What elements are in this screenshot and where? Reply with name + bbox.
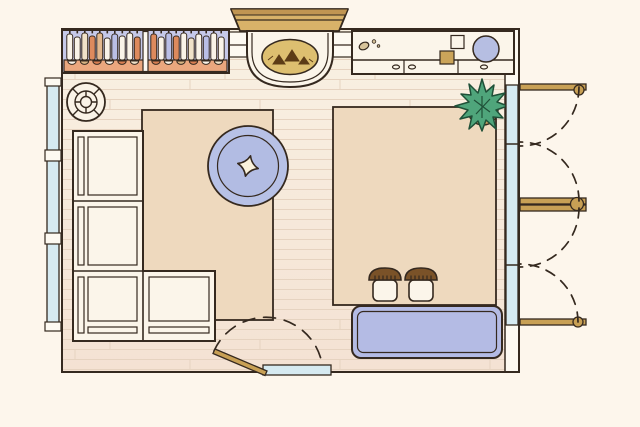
entry-door-sill — [263, 365, 331, 375]
drawer-handle — [409, 65, 416, 69]
book — [203, 36, 209, 60]
stool-cap — [405, 268, 437, 280]
drawer-handle — [393, 65, 400, 69]
book — [82, 33, 88, 60]
decor-pebble-small — [377, 45, 380, 48]
shelf-bowl — [202, 61, 210, 64]
floor-plan — [0, 0, 640, 427]
stool-cap — [369, 268, 401, 280]
shelf-bowl — [214, 61, 222, 64]
round-rug — [208, 126, 288, 206]
window-glazing — [47, 84, 59, 326]
window-cap-top — [45, 78, 61, 86]
book — [134, 37, 140, 60]
decor-pebble-small — [372, 40, 376, 44]
bench-body — [352, 306, 502, 358]
bench — [352, 306, 502, 358]
book — [127, 33, 133, 60]
door-glazing — [506, 85, 518, 325]
floor-plan-canvas — [0, 0, 640, 427]
stool — [405, 268, 437, 301]
shelf-bowl — [118, 61, 126, 64]
shelf-bowl — [177, 61, 185, 64]
drawer-handle — [481, 65, 488, 69]
bookshelf — [62, 30, 229, 73]
console-table — [352, 31, 514, 74]
round-side-table — [67, 83, 105, 121]
mantel-top-band — [231, 9, 348, 15]
book — [67, 34, 73, 60]
book — [158, 37, 164, 60]
book — [166, 33, 172, 60]
decor-square-white — [451, 36, 464, 49]
stool — [369, 268, 401, 301]
window-cap-bottom — [45, 322, 61, 331]
shelf-bowl — [68, 61, 76, 64]
book — [173, 36, 179, 60]
bookshelf-divider — [143, 32, 148, 72]
shelf-bowl — [93, 61, 101, 64]
shelf-bowl — [152, 61, 160, 64]
window-left — [45, 78, 61, 331]
shelf-bowl — [189, 61, 197, 64]
stool-seat — [409, 280, 433, 301]
book — [188, 38, 194, 60]
book — [151, 34, 157, 60]
shelf-bowl — [164, 61, 172, 64]
stool-seat — [373, 280, 397, 301]
shelf-bowl — [130, 61, 138, 64]
decor-square-gold — [440, 51, 454, 64]
book — [74, 37, 80, 60]
door-knob — [571, 198, 584, 211]
window-mullion — [45, 150, 61, 161]
book — [104, 38, 110, 60]
shelf-bowl — [105, 61, 113, 64]
book — [218, 37, 224, 60]
book — [119, 36, 125, 60]
book — [211, 33, 217, 60]
decor-bowl — [473, 36, 499, 62]
book — [112, 34, 118, 60]
book — [196, 34, 202, 60]
book — [89, 36, 95, 60]
book — [181, 33, 187, 60]
window-mullion — [45, 233, 61, 244]
book — [97, 33, 103, 60]
shelf-bowl — [80, 61, 88, 64]
